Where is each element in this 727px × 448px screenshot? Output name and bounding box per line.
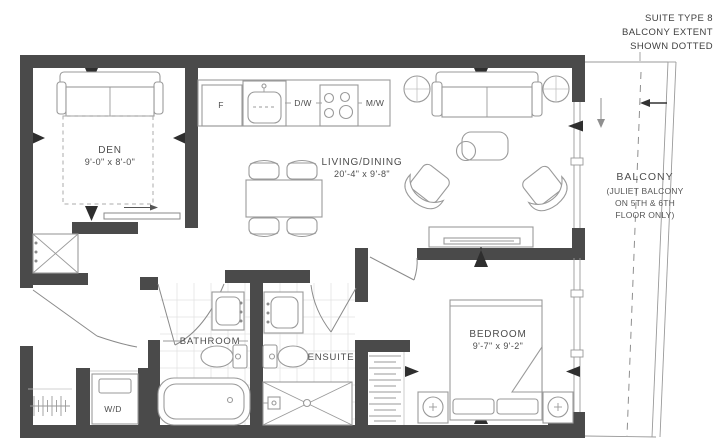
washer-dryer-label: W/D [104,404,121,414]
dining-chair [249,218,279,234]
window-opening-marker [566,366,580,377]
dining-table [246,180,322,217]
den-sofa-bed [57,72,163,204]
entry-closet-hangers [28,389,72,416]
shower-valve [268,397,280,409]
suite-type-annotation-3: SHOWN DOTTED [630,41,713,52]
balcony-note-1: (JULIET BALCONY [606,186,683,196]
washer-dryer: W/D [90,371,138,424]
shower [263,382,352,425]
balcony-door-swing-arrow [597,98,605,128]
suite-type-annotation-1: SUITE TYPE 8 [645,13,713,24]
bedroom-window [571,258,583,412]
balcony-note-3: FLOOR ONLY) [615,210,674,220]
dining-chair [287,218,317,234]
bathroom-label: BATHROOM [180,336,241,347]
den-label: DEN [98,145,122,156]
juliet-opening-marker [568,121,583,132]
microwave-label: M/W [366,98,384,108]
balcony-note-2: ON 5TH & 6TH [615,198,675,208]
dishwasher-label: D/W [294,98,311,108]
entry-shelf-unit [33,234,78,273]
fridge-label: F [218,100,224,110]
ensuite-vanity [264,292,303,333]
balcony-extent-dashed-line [627,72,641,436]
den-right-tick [173,133,185,144]
bathroom-vanity [212,292,244,330]
bedroom-dims: 9'-7" x 9'-2" [473,341,524,351]
ensuite-toilet [263,345,308,368]
suite-type-annotation-2: BALCONY EXTENT [622,27,713,38]
pillow [497,399,538,414]
floor-plan: W/D F D/W M/W [0,0,727,448]
den-dims: 9'-0" x 8'-0" [85,157,136,167]
nightstand [418,392,448,423]
kitchen-counter: F D/W M/W [198,80,390,126]
dining-chair [249,163,279,179]
nightstand [543,392,573,423]
bathroom-toilet [201,345,247,368]
balcony-label: BALCONY [616,171,673,183]
coffee-table [457,132,509,161]
bed [450,300,542,420]
entry-door [33,290,137,347]
living-sofa [432,72,542,117]
dining-chair [287,163,317,179]
balcony-outline [585,52,676,437]
kitchen-sink [243,81,286,126]
living-dining-dims: 20'-4" x 9'-8" [334,169,390,179]
bedroom-corridor-door [370,257,417,280]
ensuite-label: ENSUITE [308,352,355,363]
den-bottom-marker [85,206,98,221]
armchair [398,159,455,216]
floor-plan-drawing: W/D F D/W M/W [0,0,727,448]
living-dining-label: LIVING/DINING [322,157,403,168]
juliet-balcony-door [571,102,583,228]
armchair [516,161,573,218]
dining-set [246,161,322,237]
stove [320,85,358,126]
tv-console [429,227,533,247]
bedroom-closet-hangers [369,352,404,425]
bedroom-label: BEDROOM [469,329,526,340]
slide-direction-arrow [150,205,158,211]
balcony-extent-arrow [640,99,667,107]
side-table [543,76,569,102]
closet-opening-marker [405,366,419,377]
pillow [453,399,494,414]
den-sliding-door [104,205,180,220]
den-left-tick [33,133,45,144]
bathtub [158,378,250,425]
ensuite-door [311,285,356,332]
side-table [404,76,430,102]
